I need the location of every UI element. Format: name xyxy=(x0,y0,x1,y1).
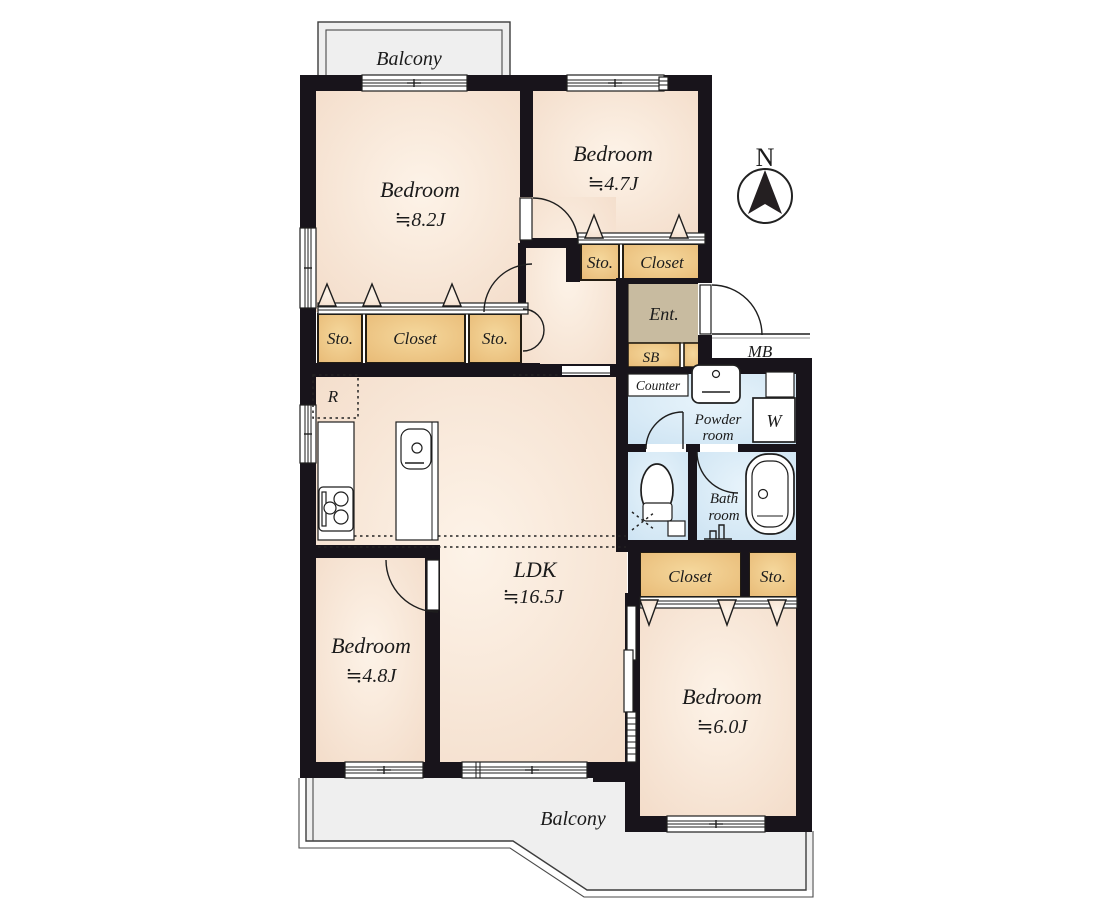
closet-se-label: Closet xyxy=(668,567,713,586)
bedroom-nw-size: ≒8.2J xyxy=(395,209,447,231)
bedroom-se-size: ≒6.0J xyxy=(697,716,749,738)
floor-plan-canvas: N Balcony Balcony Bedroom ≒8.2J Bedroom … xyxy=(0,0,1100,907)
kitchen-sink-icon xyxy=(401,429,431,469)
balcony-bottom-label: Balcony xyxy=(540,808,606,830)
window-bedroom-se xyxy=(667,816,765,832)
entry-door-swing xyxy=(712,285,762,335)
meter-box-label: MB xyxy=(747,342,773,361)
bedroom-n-size: ≒4.7J xyxy=(588,173,640,195)
sto-nw-right-label: Sto. xyxy=(482,329,508,348)
room-hall xyxy=(520,197,616,377)
window-bedroom-nw-side xyxy=(300,228,316,308)
closet-hall-label: Closet xyxy=(640,253,685,272)
bath-room-label-2: room xyxy=(708,508,739,524)
washer-label: W xyxy=(767,411,784,431)
bedroom-sw-label: Bedroom xyxy=(331,633,411,658)
shoe-box-label: SB xyxy=(643,350,660,366)
bath-room-label-1: Bath xyxy=(710,491,738,507)
window-bedroom-sw xyxy=(345,762,423,778)
bedroom-nw-label: Bedroom xyxy=(380,177,460,202)
washbasin-icon xyxy=(692,365,740,403)
north-arrow: N xyxy=(738,143,792,223)
stove-icon xyxy=(319,487,353,531)
bathtub-icon xyxy=(746,454,794,534)
powder-cabinet xyxy=(766,372,794,397)
north-arrow-needle xyxy=(748,170,782,214)
room-bedroom-sw xyxy=(316,558,425,762)
vent-icon xyxy=(659,77,668,90)
north-label: N xyxy=(756,143,775,172)
balcony-top-label: Balcony xyxy=(376,48,442,70)
window-ldk xyxy=(462,762,587,778)
closet-nw-label: Closet xyxy=(393,329,438,348)
bedroom-n-label: Bedroom xyxy=(573,141,653,166)
refrigerator-label: R xyxy=(327,387,339,406)
counter-label: Counter xyxy=(636,378,681,393)
powder-room-label-2: room xyxy=(702,428,733,444)
floor-plan: N Balcony Balcony Bedroom ≒8.2J Bedroom … xyxy=(0,0,1100,907)
sto-hall-label: Sto. xyxy=(587,253,613,272)
sto-se-label: Sto. xyxy=(760,567,786,586)
ldk-size: ≒16.5J xyxy=(503,586,565,608)
sto-nw-left-label: Sto. xyxy=(327,329,353,348)
ldk-label: LDK xyxy=(513,557,558,582)
bedroom-se-label: Bedroom xyxy=(682,684,762,709)
bedroom-sw-size: ≒4.8J xyxy=(346,665,398,687)
entrance-label: Ent. xyxy=(648,304,679,324)
window-kitchen-side xyxy=(300,405,316,463)
window-top-left xyxy=(362,75,467,91)
window-top-right xyxy=(567,75,664,91)
powder-room-label-1: Powder xyxy=(694,412,742,428)
